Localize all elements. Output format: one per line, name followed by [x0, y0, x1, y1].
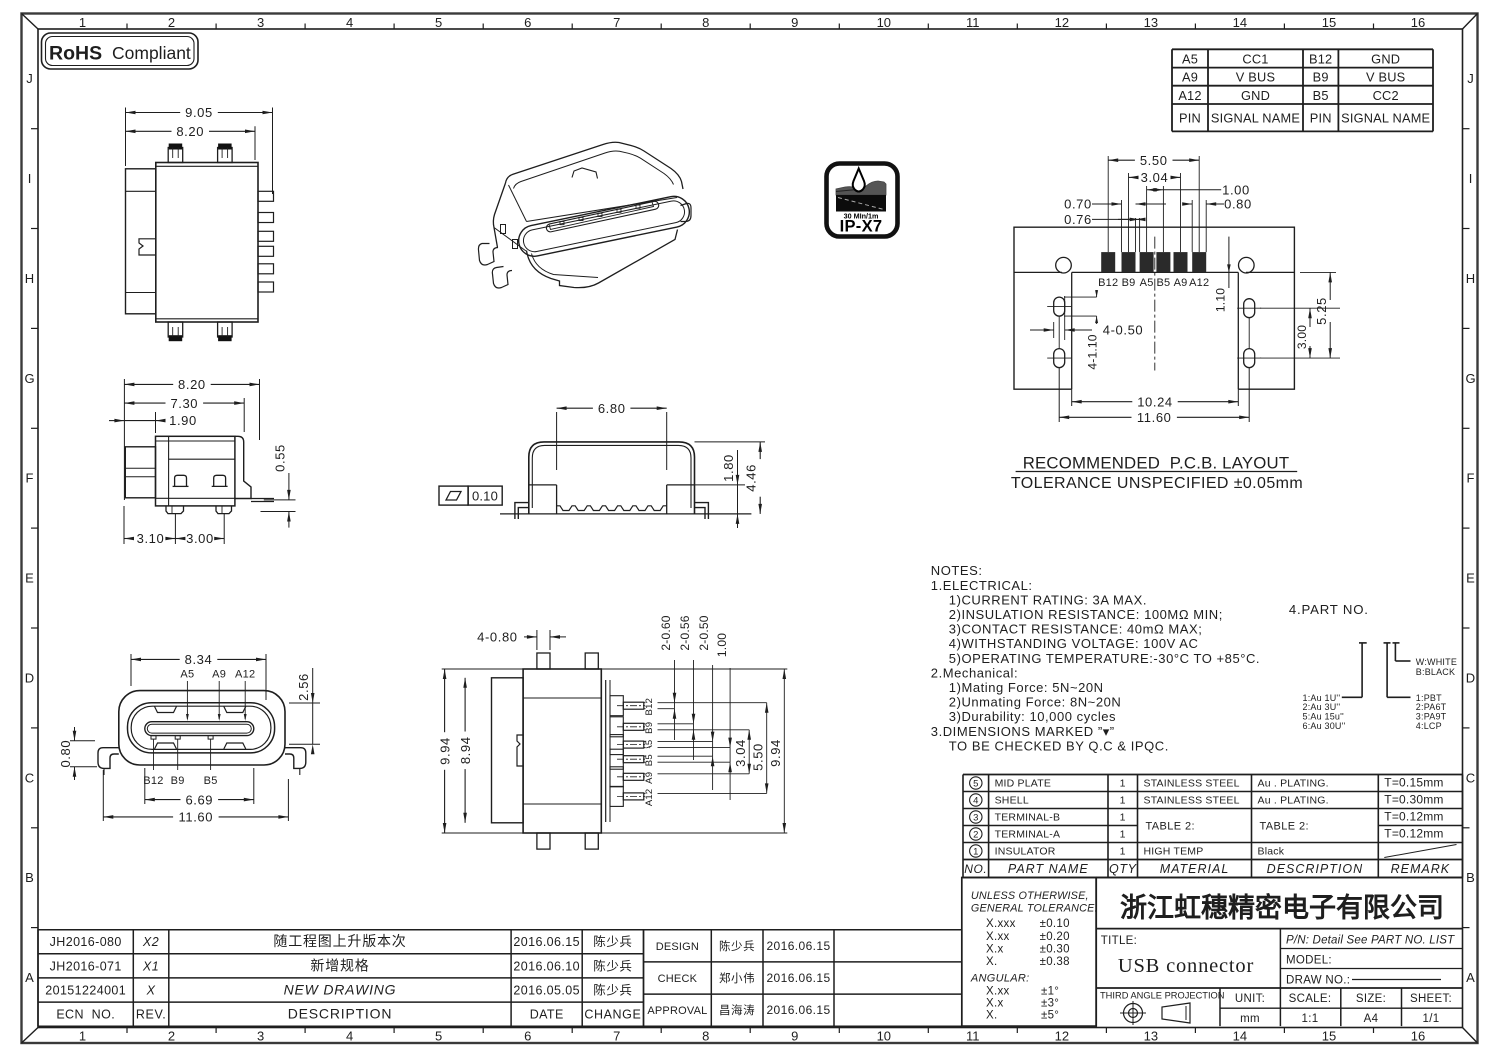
svg-text:1: 1 [973, 847, 978, 858]
svg-text:X.xx: X.xx [986, 985, 1010, 997]
svg-text:9: 9 [791, 15, 798, 30]
svg-text:1.00: 1.00 [715, 633, 729, 657]
svg-text:7.30: 7.30 [170, 396, 198, 411]
svg-text:A: A [25, 970, 34, 985]
svg-text:陈少兵: 陈少兵 [719, 939, 755, 953]
svg-text:X.: X. [986, 1010, 997, 1022]
svg-text:20151224001: 20151224001 [45, 984, 126, 998]
svg-text:浙江虹穗精密电子有限公司: 浙江虹穗精密电子有限公司 [1120, 892, 1444, 923]
svg-text:15: 15 [1322, 15, 1336, 30]
svg-text:V BUS: V BUS [1366, 70, 1405, 85]
svg-text:1: 1 [1120, 778, 1126, 790]
svg-text:B: B [1466, 870, 1475, 885]
svg-text:X.x: X.x [986, 997, 1004, 1009]
svg-text:A12: A12 [235, 669, 255, 681]
svg-text:6:Au 30U'': 6:Au 30U'' [1303, 721, 1346, 731]
svg-text:B9: B9 [1122, 277, 1136, 289]
svg-text:2: 2 [973, 830, 978, 841]
svg-text:B9: B9 [644, 722, 655, 734]
svg-text:C: C [25, 770, 34, 785]
svg-text:2)Unmating Force: 8N~20N: 2)Unmating Force: 8N~20N [949, 695, 1122, 710]
svg-text:Black: Black [1258, 846, 1285, 858]
svg-text:8.20: 8.20 [178, 377, 206, 392]
svg-text:E: E [25, 571, 34, 586]
svg-text:G: G [24, 371, 34, 386]
svg-text:B12: B12 [143, 775, 163, 787]
svg-text:±0.30: ±0.30 [1040, 943, 1070, 955]
svg-text:JH2016-071: JH2016-071 [50, 959, 122, 973]
svg-text:0.80: 0.80 [1224, 197, 1252, 212]
svg-text:I: I [1469, 171, 1473, 186]
svg-text:B5: B5 [644, 754, 655, 766]
svg-text:Compliant: Compliant [112, 43, 191, 63]
svg-text:3)Durability: 10,000 cycles: 3)Durability: 10,000 cycles [949, 709, 1116, 724]
svg-text:DRAW NO.:: DRAW NO.: [1286, 975, 1350, 987]
svg-text:1: 1 [1120, 846, 1126, 858]
svg-text:4-0.50: 4-0.50 [1103, 323, 1143, 338]
svg-text:1/1: 1/1 [1423, 1013, 1440, 1025]
svg-text:4)WITHSTANDING VOLTAGE: 100V A: 4)WITHSTANDING VOLTAGE: 100V AC [949, 636, 1199, 651]
svg-text:X.xx: X.xx [986, 931, 1010, 943]
svg-text:2)INSULATION RESISTANCE: 100MΩ: 2)INSULATION RESISTANCE: 100MΩ MIN; [949, 607, 1223, 622]
svg-text:MODEL:: MODEL: [1286, 955, 1332, 967]
svg-text:A12: A12 [1189, 277, 1209, 289]
svg-text:RoHS: RoHS [49, 43, 102, 65]
svg-text:H: H [25, 271, 34, 286]
svg-text:1.10: 1.10 [1214, 288, 1228, 312]
svg-text:B: B [25, 870, 34, 885]
svg-text:mm: mm [1240, 1013, 1260, 1025]
svg-text:0.80: 0.80 [58, 740, 73, 768]
svg-text:3.04: 3.04 [1141, 170, 1169, 185]
svg-text:GENERAL TOLERANCE:: GENERAL TOLERANCE: [971, 902, 1098, 914]
svg-text:I: I [28, 171, 32, 186]
svg-text:UNLESS OTHERWISE,: UNLESS OTHERWISE, [971, 890, 1089, 902]
svg-text:T=0.12mm: T=0.12mm [1384, 810, 1443, 824]
svg-text:A9: A9 [1182, 70, 1198, 85]
svg-text:2016.06.10: 2016.06.10 [513, 959, 580, 973]
svg-text:P/N: Detail See PART NO. LIST: P/N: Detail See PART NO. LIST [1286, 935, 1455, 947]
svg-text:11: 11 [966, 15, 980, 30]
svg-text:PIN: PIN [1310, 111, 1332, 126]
svg-text:X: X [146, 984, 156, 998]
svg-text:G: G [1465, 371, 1475, 386]
svg-text:A5: A5 [180, 669, 194, 681]
svg-text:TOLERANCE UNSPECIFIED ±0.05mm: TOLERANCE UNSPECIFIED ±0.05mm [1011, 475, 1303, 492]
svg-text:±0.10: ±0.10 [1040, 918, 1070, 930]
svg-text:4-1.10: 4-1.10 [1086, 334, 1100, 369]
svg-text:D: D [1466, 671, 1475, 686]
svg-text:T=0.12mm: T=0.12mm [1384, 827, 1443, 841]
svg-text:3.00: 3.00 [1295, 325, 1309, 349]
svg-text:9.94: 9.94 [768, 739, 783, 767]
svg-text:STAINLESS STEEL: STAINLESS STEEL [1144, 778, 1240, 790]
svg-text:1)CURRENT RATING: 3A MAX.: 1)CURRENT RATING: 3A MAX. [949, 592, 1147, 607]
svg-text:4.PART NO.: 4.PART NO. [1289, 602, 1369, 617]
svg-text:B9: B9 [171, 775, 185, 787]
svg-text:X.x: X.x [986, 943, 1004, 955]
svg-text:1: 1 [1120, 795, 1126, 807]
svg-text:GND: GND [1371, 51, 1400, 66]
svg-text:W:WHITE: W:WHITE [1416, 657, 1457, 667]
svg-text:TO BE CHECKED BY Q.C & IPQC.: TO BE CHECKED BY Q.C & IPQC. [949, 738, 1169, 753]
svg-text:14: 14 [1233, 15, 1247, 30]
svg-text:3)CONTACT RESISTANCE: 40mΩ MAX: 3)CONTACT RESISTANCE: 40mΩ MAX; [949, 622, 1203, 637]
svg-text:SIGNAL NAME: SIGNAL NAME [1341, 111, 1430, 126]
svg-text:T=0.30mm: T=0.30mm [1384, 793, 1443, 807]
svg-text:新增规格: 新增规格 [310, 957, 369, 973]
svg-text:8.20: 8.20 [176, 124, 204, 139]
svg-text:4:LCP: 4:LCP [1416, 721, 1442, 731]
svg-text:±3°: ±3° [1041, 997, 1059, 1009]
svg-text:SHEET:: SHEET: [1410, 993, 1452, 1005]
svg-text:11.60: 11.60 [179, 810, 214, 825]
svg-text:3: 3 [973, 813, 978, 824]
svg-text:1:1: 1:1 [1302, 1013, 1319, 1025]
svg-text:5.50: 5.50 [1140, 153, 1168, 168]
svg-text:7: 7 [613, 15, 620, 30]
svg-text:8: 8 [702, 15, 709, 30]
svg-text:0.10: 0.10 [472, 489, 498, 504]
svg-text:2-0.60: 2-0.60 [659, 615, 673, 650]
svg-text:16: 16 [1411, 15, 1425, 30]
svg-text:1.80: 1.80 [721, 454, 736, 482]
svg-text:15: 15 [1322, 1029, 1336, 1044]
svg-text:0.55: 0.55 [272, 444, 287, 472]
svg-text:A: A [1466, 970, 1475, 985]
svg-text:J: J [26, 71, 33, 86]
svg-text:2.56: 2.56 [296, 673, 311, 701]
svg-text:8.94: 8.94 [458, 736, 473, 764]
svg-text:A9: A9 [1174, 277, 1188, 289]
svg-text:11.60: 11.60 [1137, 410, 1172, 425]
svg-text:陈少兵: 陈少兵 [593, 934, 632, 949]
svg-text:HIGH TEMP: HIGH TEMP [1144, 846, 1204, 858]
svg-text:MID PLATE: MID PLATE [995, 778, 1051, 790]
svg-text:D: D [25, 671, 34, 686]
svg-text:A4: A4 [1364, 1013, 1379, 1025]
svg-text:2: 2 [168, 15, 175, 30]
svg-text:14: 14 [1233, 1029, 1247, 1044]
svg-text:J: J [1467, 71, 1474, 86]
svg-text:Au . PLATING.: Au . PLATING. [1258, 778, 1329, 790]
svg-text:10.24: 10.24 [1137, 394, 1173, 409]
svg-text:RECOMMENDED P.C.B. LAYOUT: RECOMMENDED P.C.B. LAYOUT [1023, 454, 1290, 473]
svg-text:9.05: 9.05 [185, 105, 213, 120]
svg-text:0.76: 0.76 [1064, 212, 1092, 227]
svg-text:2016.06.15: 2016.06.15 [513, 935, 580, 949]
svg-text:2-0.56: 2-0.56 [678, 615, 692, 650]
svg-text:DESIGN: DESIGN [656, 941, 699, 953]
svg-text:5: 5 [435, 1029, 442, 1044]
svg-text:8: 8 [702, 1029, 709, 1044]
svg-text:2016.05.05: 2016.05.05 [513, 984, 580, 998]
svg-text:±0.38: ±0.38 [1040, 956, 1070, 968]
svg-text:4-0.80: 4-0.80 [477, 630, 517, 645]
svg-text:STAINLESS STEEL: STAINLESS STEEL [1144, 795, 1240, 807]
svg-text:F: F [1467, 471, 1475, 486]
svg-text:TABLE 2:: TABLE 2: [1146, 821, 1195, 833]
svg-text:A12: A12 [644, 789, 655, 807]
svg-text:A12: A12 [1178, 88, 1201, 103]
svg-text:DATE: DATE [530, 1008, 564, 1022]
svg-text:5)OPERATING TEMPERATURE:-30°C: 5)OPERATING TEMPERATURE:-30°C TO +85°C. [949, 651, 1260, 666]
svg-text:IP-X7: IP-X7 [840, 218, 883, 236]
svg-text:4: 4 [346, 15, 353, 30]
svg-text:随工程图上升版本次: 随工程图上升版本次 [273, 933, 406, 949]
svg-text:12: 12 [1055, 1029, 1069, 1044]
svg-text:2: 2 [168, 1029, 175, 1044]
svg-text:B:BLACK: B:BLACK [1416, 667, 1455, 677]
svg-text:CHANGE: CHANGE [584, 1008, 641, 1022]
svg-text:B5: B5 [1313, 88, 1329, 103]
svg-text:±0.20: ±0.20 [1040, 931, 1070, 943]
svg-text:13: 13 [1144, 1029, 1158, 1044]
svg-text:3.10: 3.10 [137, 531, 165, 546]
svg-text:8.34: 8.34 [185, 652, 213, 667]
svg-text:1: 1 [79, 1029, 86, 1044]
svg-text:9.94: 9.94 [437, 737, 452, 765]
svg-text:APPROVAL: APPROVAL [647, 1005, 707, 1017]
svg-text:USB connector: USB connector [1118, 955, 1254, 977]
svg-text:2016.06.15: 2016.06.15 [766, 1003, 830, 1017]
svg-text:NEW DRAWING: NEW DRAWING [284, 982, 397, 998]
svg-text:陈少兵: 陈少兵 [593, 958, 632, 973]
svg-text:A9: A9 [212, 669, 226, 681]
svg-text:±5°: ±5° [1041, 1010, 1059, 1022]
svg-text:B12: B12 [1098, 277, 1118, 289]
svg-text:T=0.15mm: T=0.15mm [1384, 776, 1443, 790]
svg-text:B12: B12 [644, 698, 655, 716]
svg-text:H: H [1466, 271, 1475, 286]
svg-text:X1: X1 [142, 959, 160, 973]
svg-text:TITLE:: TITLE: [1101, 935, 1137, 947]
svg-text:V BUS: V BUS [1236, 70, 1275, 85]
svg-text:SIGNAL NAME: SIGNAL NAME [1211, 111, 1300, 126]
svg-text:3.DIMENSIONS MARKED ”▾”: 3.DIMENSIONS MARKED ”▾” [931, 724, 1115, 739]
svg-text:4: 4 [346, 1029, 353, 1044]
svg-text:NOTES:: NOTES: [931, 563, 983, 578]
svg-text:6: 6 [524, 15, 531, 30]
svg-text:TERMINAL-A: TERMINAL-A [995, 829, 1061, 841]
svg-text:9: 9 [791, 1029, 798, 1044]
svg-text:Au . PLATING.: Au . PLATING. [1258, 795, 1329, 807]
svg-text:3.04: 3.04 [733, 739, 748, 767]
svg-text:CC2: CC2 [1373, 88, 1399, 103]
svg-text:PART NAME: PART NAME [1008, 862, 1089, 876]
svg-text:1)Mating Force: 5N~20N: 1)Mating Force: 5N~20N [949, 680, 1104, 695]
svg-text:CHECK: CHECK [658, 973, 698, 985]
svg-text:TERMINAL-B: TERMINAL-B [995, 812, 1061, 824]
svg-text:2.Mechanical:: 2.Mechanical: [931, 665, 1018, 680]
svg-text:5: 5 [973, 779, 978, 790]
svg-text:B12: B12 [1309, 51, 1332, 66]
svg-text:10: 10 [877, 15, 891, 30]
svg-text:2016.06.15: 2016.06.15 [766, 971, 830, 985]
svg-text:4.46: 4.46 [744, 464, 759, 492]
svg-text:ANGULAR:: ANGULAR: [970, 973, 1030, 985]
svg-text:SIZE:: SIZE: [1356, 993, 1386, 1005]
svg-text:16: 16 [1411, 1029, 1425, 1044]
svg-text:4: 4 [973, 796, 978, 807]
svg-text:昌海涛: 昌海涛 [719, 1003, 755, 1017]
svg-text:DESCRIPTION: DESCRIPTION [1267, 862, 1363, 876]
svg-text:NO.: NO. [964, 862, 987, 876]
svg-text:7: 7 [613, 1029, 620, 1044]
svg-text:1: 1 [79, 15, 86, 30]
svg-text:MATERIAL: MATERIAL [1160, 862, 1230, 876]
svg-text:5: 5 [435, 15, 442, 30]
svg-text:2016.06.15: 2016.06.15 [766, 939, 830, 953]
svg-text:SCALE:: SCALE: [1289, 993, 1332, 1005]
svg-text:X2: X2 [142, 935, 160, 949]
svg-text:DESCRIPTION: DESCRIPTION [288, 1006, 392, 1022]
svg-text:6.69: 6.69 [185, 792, 213, 807]
svg-text:CC1: CC1 [1242, 51, 1268, 66]
svg-text:1: 1 [1120, 812, 1126, 824]
svg-text:6.80: 6.80 [598, 401, 626, 416]
svg-text:6: 6 [524, 1029, 531, 1044]
svg-text:11: 11 [966, 1029, 980, 1044]
svg-text:1.90: 1.90 [169, 413, 197, 428]
svg-text:1.00: 1.00 [1222, 183, 1250, 198]
svg-text:GND: GND [1241, 88, 1270, 103]
svg-text:5.50: 5.50 [751, 743, 766, 771]
svg-text:TABLE 2:: TABLE 2: [1260, 821, 1309, 833]
svg-text:PIN: PIN [1179, 111, 1201, 126]
svg-text:C: C [1466, 770, 1475, 785]
svg-text:12: 12 [1055, 15, 1069, 30]
svg-text:F: F [26, 471, 34, 486]
svg-text:REMARK: REMARK [1391, 862, 1450, 876]
svg-text:X.xxx: X.xxx [986, 918, 1016, 930]
svg-text:1: 1 [1120, 829, 1126, 841]
svg-text:3: 3 [257, 15, 264, 30]
svg-text:3: 3 [257, 1029, 264, 1044]
svg-text:A5: A5 [1140, 277, 1154, 289]
svg-text:±1°: ±1° [1041, 985, 1059, 997]
svg-text:SHELL: SHELL [995, 795, 1029, 807]
svg-text:A5: A5 [1182, 51, 1198, 66]
svg-text:1.ELECTRICAL:: 1.ELECTRICAL: [931, 578, 1033, 593]
svg-text:X.: X. [986, 956, 997, 968]
svg-text:UNIT:: UNIT: [1235, 993, 1265, 1005]
svg-text:B5: B5 [204, 775, 218, 787]
svg-text:ECN NO.: ECN NO. [56, 1008, 115, 1022]
svg-text:REV.: REV. [136, 1008, 166, 1022]
svg-text:3.00: 3.00 [186, 531, 214, 546]
svg-text:E: E [1466, 571, 1475, 586]
svg-text:郑小伟: 郑小伟 [719, 971, 755, 985]
svg-text:JH2016-080: JH2016-080 [50, 935, 122, 949]
svg-text:THIRD ANGLE PROJECTION: THIRD ANGLE PROJECTION [1100, 991, 1225, 1001]
svg-text:陈少兵: 陈少兵 [593, 983, 632, 998]
svg-text:QTY: QTY [1109, 862, 1138, 876]
svg-text:10: 10 [877, 1029, 891, 1044]
svg-text:2-0.50: 2-0.50 [697, 615, 711, 650]
svg-text:A9: A9 [644, 772, 655, 784]
svg-text:B5: B5 [1156, 277, 1170, 289]
svg-text:INSULATOR: INSULATOR [995, 846, 1056, 858]
svg-text:B9: B9 [1313, 70, 1329, 85]
svg-text:13: 13 [1144, 15, 1158, 30]
svg-text:0.70: 0.70 [1064, 197, 1092, 212]
svg-text:5.25: 5.25 [1314, 297, 1329, 325]
